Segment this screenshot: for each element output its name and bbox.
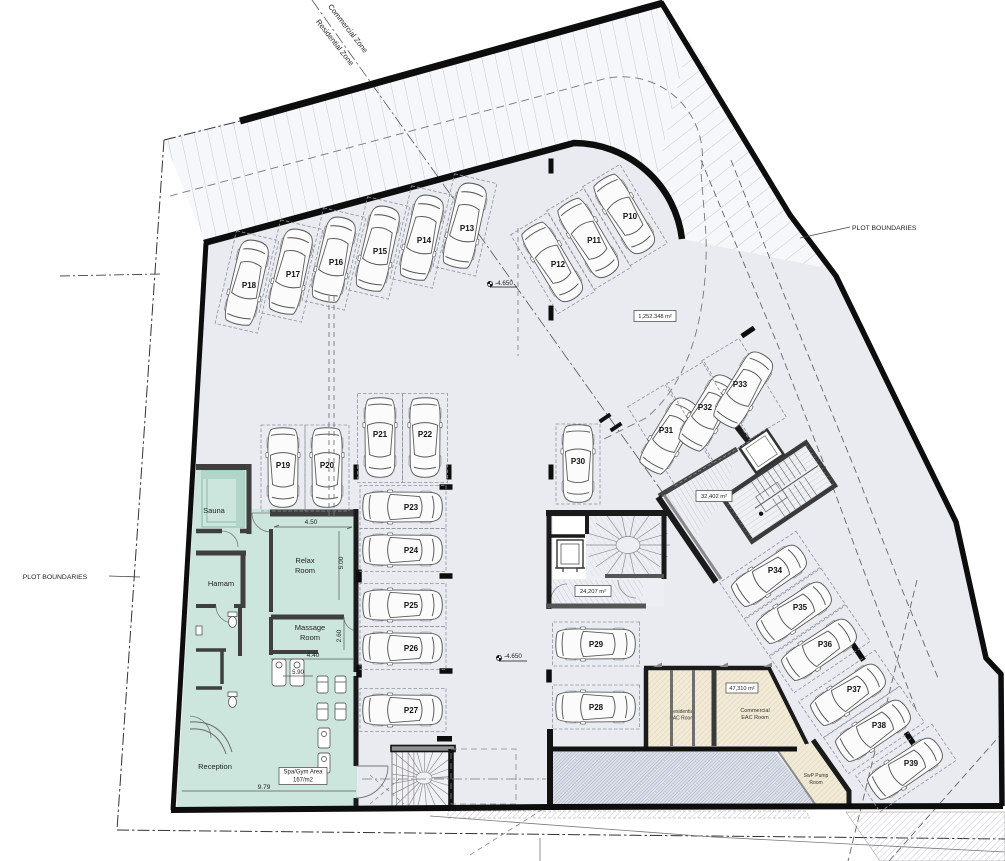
svg-text:P36: P36 (818, 640, 833, 649)
svg-text:P29: P29 (589, 640, 604, 649)
svg-text:P11: P11 (587, 236, 601, 245)
svg-text:5.90: 5.90 (292, 670, 304, 676)
svg-text:P27: P27 (404, 706, 419, 715)
svg-text:P14: P14 (417, 236, 432, 245)
svg-text:P39: P39 (904, 759, 919, 768)
svg-text:P26: P26 (404, 644, 419, 653)
svg-text:P18: P18 (242, 281, 257, 290)
svg-text:P19: P19 (276, 461, 291, 470)
svg-text:EAC Room: EAC Room (741, 715, 769, 721)
svg-text:EAC Room: EAC Room (669, 716, 694, 722)
svg-text:PLOT BOUNDARIES: PLOT BOUNDARIES (852, 225, 917, 232)
svg-text:P10: P10 (623, 212, 638, 221)
svg-text:P30: P30 (571, 457, 586, 466)
svg-text:Spa/Gym Area: Spa/Gym Area (283, 770, 323, 776)
svg-text:P34: P34 (768, 566, 783, 575)
svg-text:4.40: 4.40 (307, 652, 320, 659)
svg-text:P37: P37 (847, 685, 862, 694)
svg-text:P20: P20 (320, 461, 335, 470)
svg-text:P24: P24 (404, 546, 419, 555)
svg-text:1,252.348 m²: 1,252.348 m² (638, 314, 672, 320)
svg-text:167/m2: 167/m2 (293, 778, 314, 784)
svg-text:P13: P13 (460, 224, 475, 233)
svg-text:5.00: 5.00 (338, 556, 345, 569)
svg-text:32,402 m²: 32,402 m² (701, 494, 727, 500)
svg-text:2.60: 2.60 (336, 629, 343, 642)
svg-text:P25: P25 (404, 601, 419, 610)
svg-text:Relax: Relax (295, 556, 314, 565)
svg-text:24,207 m²: 24,207 m² (580, 589, 606, 595)
svg-text:P31: P31 (659, 426, 674, 435)
svg-text:SwP Pump: SwP Pump (804, 773, 829, 779)
svg-text:P38: P38 (872, 721, 887, 730)
svg-text:P23: P23 (404, 503, 419, 512)
svg-text:Sauna: Sauna (203, 506, 226, 515)
svg-text:47,310 m²: 47,310 m² (729, 686, 754, 692)
svg-text:Commercial: Commercial (740, 708, 769, 714)
svg-text:P32: P32 (698, 403, 713, 412)
svg-text:P16: P16 (329, 258, 344, 267)
svg-text:4.50: 4.50 (305, 519, 318, 526)
svg-text:P21: P21 (373, 430, 388, 439)
svg-text:P35: P35 (793, 603, 808, 612)
svg-text:9.79: 9.79 (258, 784, 271, 791)
svg-text:Room: Room (300, 633, 320, 642)
svg-text:P12: P12 (551, 260, 566, 269)
svg-text:Reception: Reception (198, 762, 232, 771)
svg-text:Massage: Massage (295, 623, 325, 632)
svg-text:Room: Room (809, 780, 822, 786)
svg-text:-4.650: -4.650 (504, 653, 522, 660)
svg-text:P22: P22 (418, 430, 433, 439)
svg-text:P17: P17 (286, 270, 301, 279)
svg-text:P15: P15 (373, 247, 388, 256)
svg-text:Hamam: Hamam (208, 579, 234, 588)
svg-text:Residential: Residential (670, 709, 695, 715)
svg-text:P28: P28 (589, 703, 604, 712)
svg-text:Room: Room (295, 566, 315, 575)
svg-text:PLOT BOUNDARIES: PLOT BOUNDARIES (23, 574, 88, 581)
svg-text:P33: P33 (733, 380, 748, 389)
svg-text:-4.650: -4.650 (495, 280, 513, 287)
